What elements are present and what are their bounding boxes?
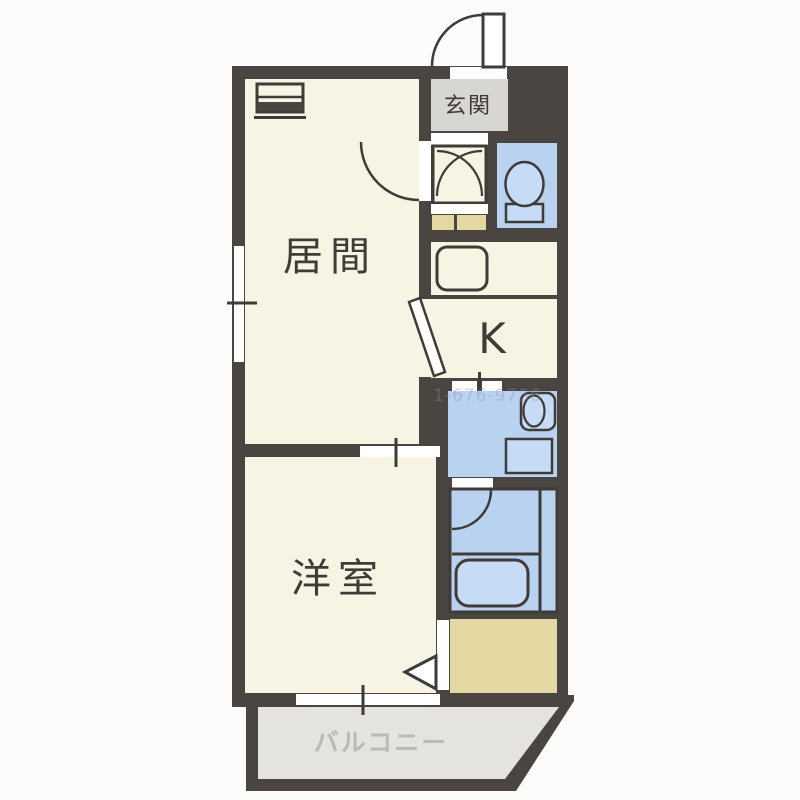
entrance-label: 玄関 <box>444 94 492 119</box>
corridor-floor <box>450 619 557 693</box>
bathroom-door-sill <box>452 478 493 488</box>
entrance-door-sill <box>450 67 507 79</box>
living-room-label: 居間 <box>283 234 377 280</box>
watermark-text: 1-676-9736 <box>433 386 542 406</box>
entry-washroom <box>431 133 488 230</box>
washroom-floor <box>433 146 486 203</box>
western-room-label: 洋室 <box>291 556 385 602</box>
toilet-room <box>497 143 557 228</box>
bottom-wall-window <box>296 694 440 705</box>
living-door-sill <box>419 141 431 201</box>
washroom-sill-bottom <box>431 204 488 214</box>
floor-plan-drawing: 玄関 居間 K 洋室 バルコニー 1-676-9736 <box>0 0 800 800</box>
washing-machine-pan <box>506 439 552 473</box>
shoe-storage-left <box>432 215 454 230</box>
toilet-bowl-icon <box>506 162 544 206</box>
kitchen-label: K <box>478 314 507 363</box>
floor-plan-page: 玄関 居間 K 洋室 バルコニー 1-676-9736 <box>0 0 800 800</box>
cabinet-base-band <box>257 102 303 111</box>
entrance-door-leaf <box>483 14 504 67</box>
room-divider-opening <box>360 446 440 457</box>
washroom-sill-top <box>431 133 488 145</box>
kitchen-counter <box>431 242 557 295</box>
balcony-label: バルコニー <box>314 728 449 757</box>
bathroom <box>450 478 557 612</box>
shoe-storage-right <box>457 215 486 230</box>
corridor-door-leaf <box>437 620 449 690</box>
bathtub-icon <box>456 560 528 606</box>
